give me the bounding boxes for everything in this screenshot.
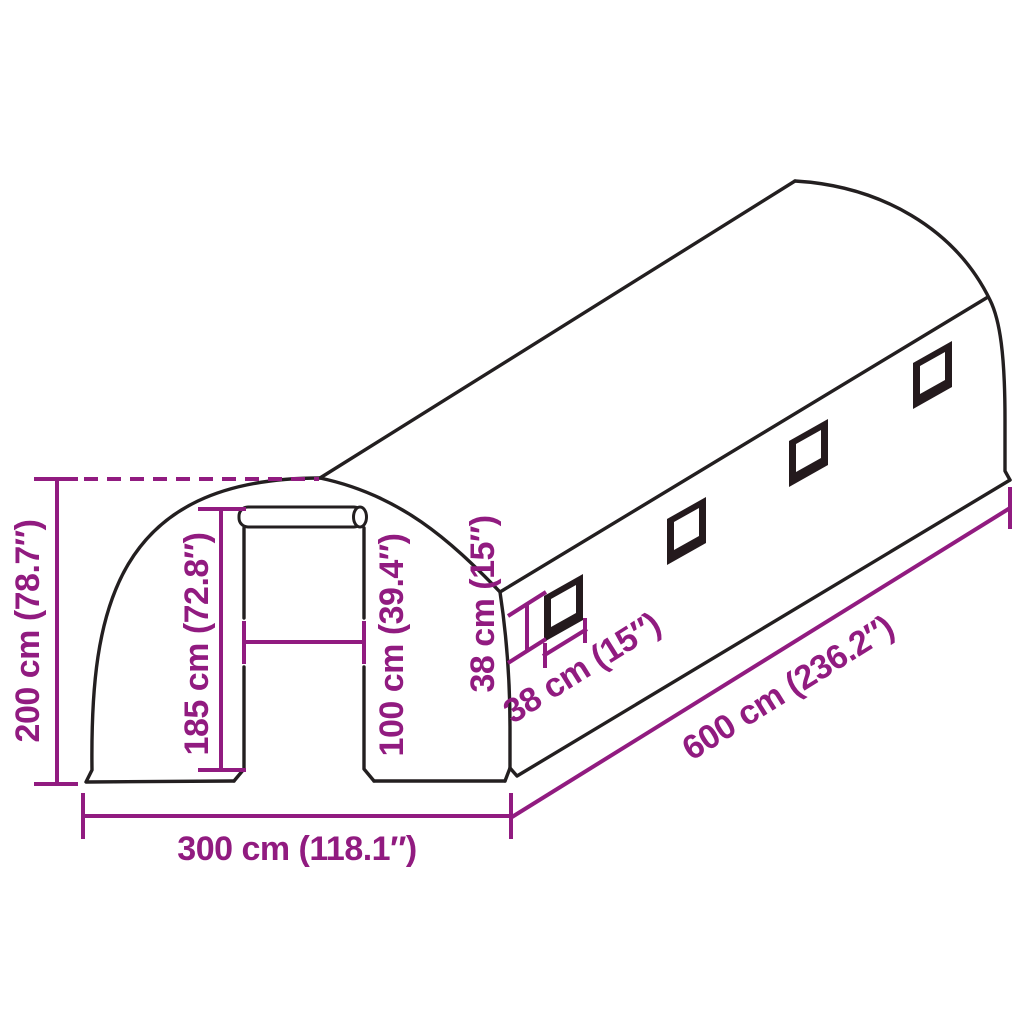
side-windows — [544, 341, 952, 642]
diagram-svg: 200 cm (78.7″) 185 cm (72.8″) 100 cm (39… — [0, 0, 1024, 1024]
dim-label-window-height: 38 cm (15″) — [464, 515, 502, 692]
dim-width: 300 cm (118.1″) — [83, 793, 512, 868]
window-3 — [789, 419, 828, 487]
window-4 — [913, 341, 952, 409]
dim-label-door-width: 100 cm (39.4″) — [373, 534, 411, 757]
dim-window-width: 38 cm (15″) — [497, 605, 667, 731]
roof-ridge-line — [320, 181, 795, 478]
eave-line — [500, 297, 988, 592]
door-roll-end-cap — [354, 507, 367, 527]
front-base-left — [87, 781, 234, 782]
dim-label-window-width: 38 cm (15″) — [497, 605, 667, 731]
dim-label-total-height: 200 cm (78.7″) — [9, 520, 47, 743]
window-2 — [667, 497, 706, 565]
dim-label-length: 600 cm (236.2″) — [676, 608, 901, 768]
door-roll — [239, 507, 363, 527]
dim-window-height: 38 cm (15″) — [464, 515, 546, 692]
window-1 — [544, 574, 583, 642]
dim-label-door-height: 185 cm (72.8″) — [178, 533, 216, 756]
greenhouse-dimension-diagram: 200 cm (78.7″) 185 cm (72.8″) 100 cm (39… — [0, 0, 1024, 1024]
dim-label-width: 300 cm (118.1″) — [177, 830, 416, 868]
door-left-jamb-lower — [234, 667, 244, 781]
dim-door-height: 185 cm (72.8″) — [178, 509, 246, 770]
dim-door-width: 100 cm (39.4″) — [244, 534, 411, 757]
